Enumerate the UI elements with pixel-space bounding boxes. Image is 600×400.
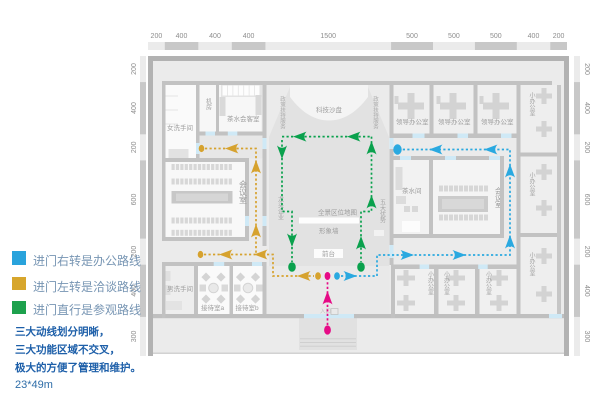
svg-text:机房: 机房	[205, 97, 212, 111]
svg-text:全景区位地图: 全景区位地图	[318, 208, 357, 217]
svg-text:400: 400	[131, 102, 138, 114]
svg-text:小办公室: 小办公室	[528, 251, 535, 276]
svg-text:茶水间: 茶水间	[402, 186, 422, 195]
svg-text:1500: 1500	[320, 33, 336, 40]
svg-text:400: 400	[209, 33, 221, 40]
svg-text:小办公室: 小办公室	[528, 171, 535, 196]
svg-text:政策扶持服务: 政策扶持服务	[372, 95, 379, 131]
svg-text:200: 200	[553, 33, 565, 40]
svg-text:600: 600	[131, 194, 138, 206]
svg-text:领导办公室: 领导办公室	[481, 117, 514, 126]
svg-text:领导办公室: 领导办公室	[438, 117, 471, 126]
svg-text:400: 400	[583, 285, 590, 297]
svg-text:会议室: 会议室	[239, 179, 248, 204]
svg-text:600: 600	[583, 194, 590, 206]
svg-text:小办公室: 小办公室	[427, 270, 434, 295]
svg-text:400: 400	[176, 33, 188, 40]
svg-text:300: 300	[583, 331, 590, 343]
svg-text:接待室b: 接待室b	[236, 303, 260, 312]
svg-text:女洗手间: 女洗手间	[167, 123, 193, 132]
svg-text:500: 500	[490, 33, 502, 40]
svg-text:500: 500	[406, 33, 418, 40]
svg-text:科技沙盘: 科技沙盘	[316, 105, 343, 114]
svg-text:形象墙: 形象墙	[319, 226, 339, 235]
svg-text:接待室a: 接待室a	[201, 303, 225, 312]
svg-text:茶水会客室: 茶水会客室	[227, 114, 260, 123]
svg-text:200: 200	[583, 141, 590, 153]
svg-text:200: 200	[131, 141, 138, 153]
svg-text:400: 400	[583, 102, 590, 114]
svg-text:领导办公室: 领导办公室	[396, 117, 429, 126]
svg-text:小办公室: 小办公室	[443, 270, 450, 295]
svg-text:200: 200	[583, 246, 590, 258]
svg-text:300: 300	[131, 330, 138, 342]
svg-text:500: 500	[448, 33, 460, 40]
svg-text:小办公室: 小办公室	[485, 270, 492, 295]
svg-text:政策扶持服务: 政策扶持服务	[279, 95, 286, 131]
svg-text:前台: 前台	[322, 249, 335, 258]
svg-text:男洗手间: 男洗手间	[167, 284, 193, 293]
svg-text:200: 200	[131, 63, 138, 75]
svg-text:五大优势: 五大优势	[379, 199, 386, 224]
svg-text:入口: 入口	[320, 308, 331, 315]
svg-text:小办公室: 小办公室	[528, 91, 535, 116]
svg-text:200: 200	[583, 63, 590, 75]
svg-text:400: 400	[243, 33, 255, 40]
svg-text:400: 400	[528, 33, 540, 40]
svg-text:200: 200	[151, 33, 163, 40]
